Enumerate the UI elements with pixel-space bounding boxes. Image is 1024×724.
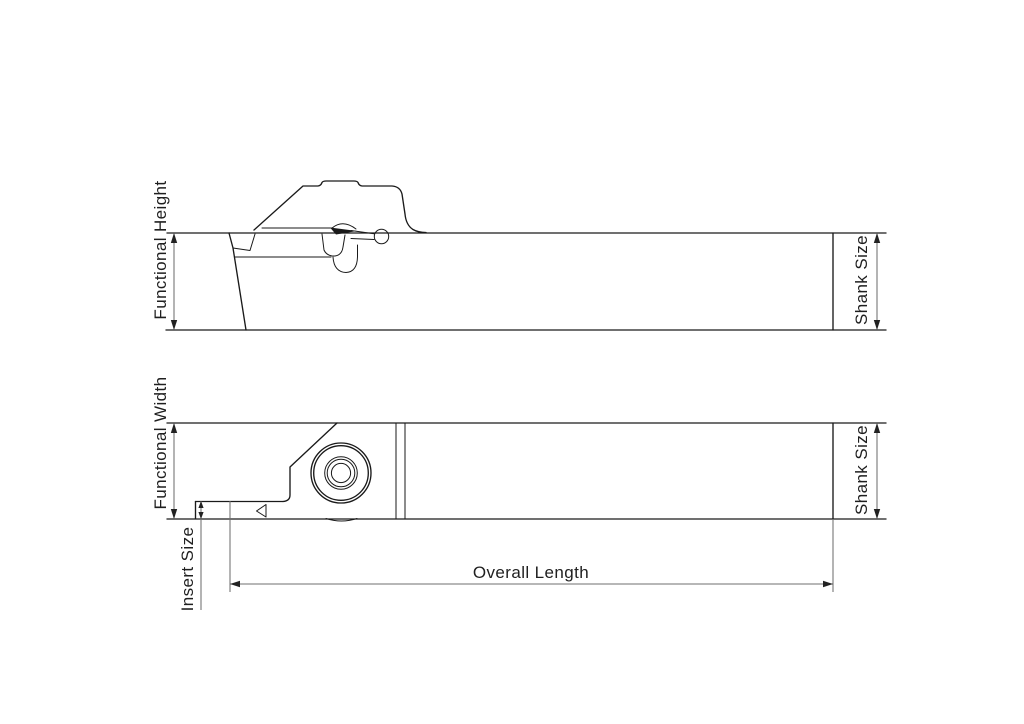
top-view-shank-size-label: Shank Size [852,425,871,515]
technical-drawing-page: Functional Height Shank Size [0,0,1024,724]
overall-length-label: Overall Length [473,563,589,582]
insert-size-label: Insert Size [178,527,197,612]
tool-holder-drawing: Functional Height Shank Size [0,0,1024,724]
functional-height-label: Functional Height [151,180,170,319]
side-view-shank-size-label: Shank Size [852,235,871,325]
functional-width-label: Functional Width [151,376,170,509]
canvas-background [0,0,1024,724]
